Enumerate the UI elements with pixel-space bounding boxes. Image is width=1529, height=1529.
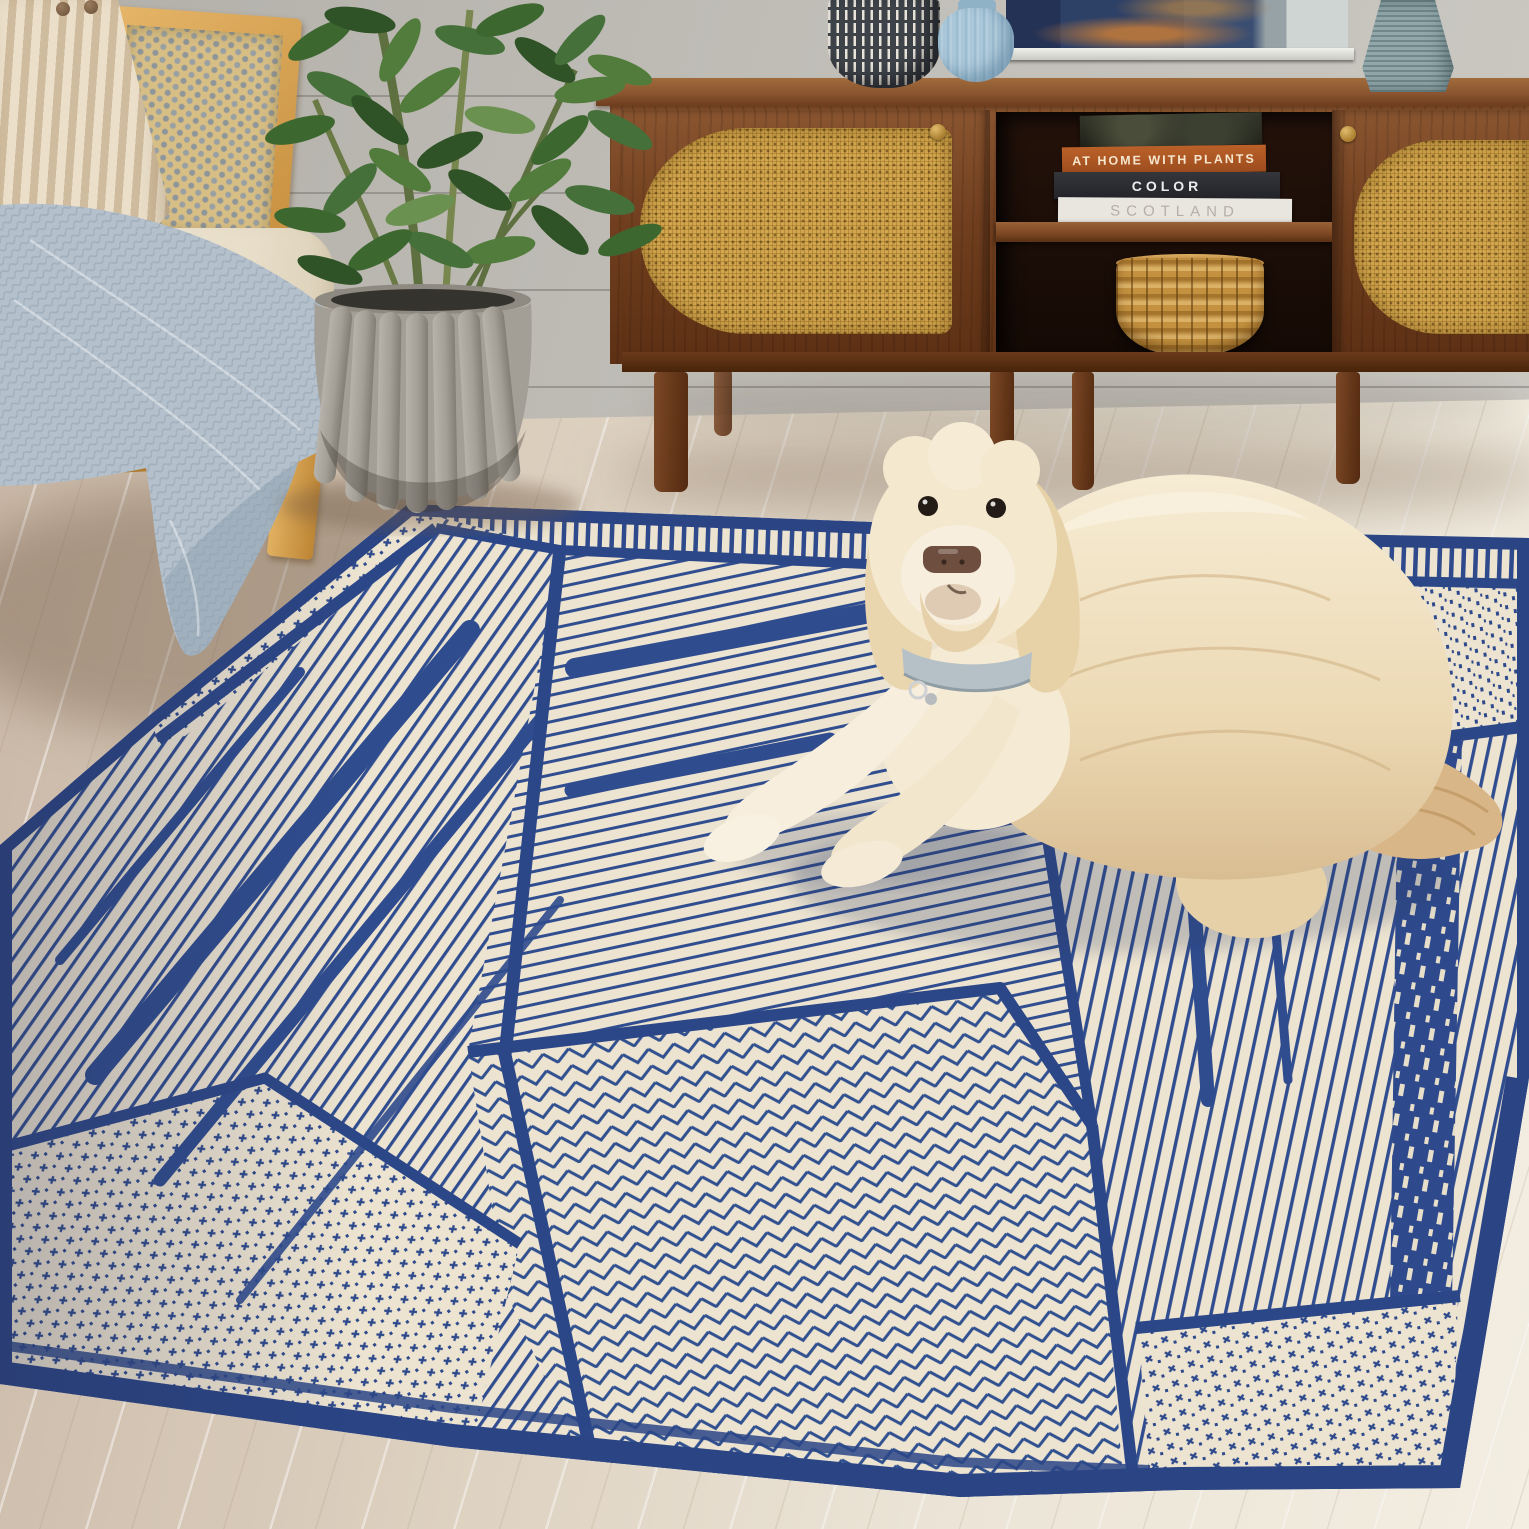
plant-leaves: [262, 0, 666, 291]
dog-eye: [986, 498, 1006, 518]
fluted-stone-planter: [313, 284, 532, 513]
foreground-objects: [0, 0, 1529, 1529]
dog-eye: [918, 496, 938, 516]
green-houseplant: [262, 0, 666, 310]
collar-tag: [925, 693, 937, 705]
dog: [697, 422, 1502, 952]
living-room-photo: AT HOME WITH PLANTS COLOR SCOTLAND: [0, 0, 1529, 1529]
